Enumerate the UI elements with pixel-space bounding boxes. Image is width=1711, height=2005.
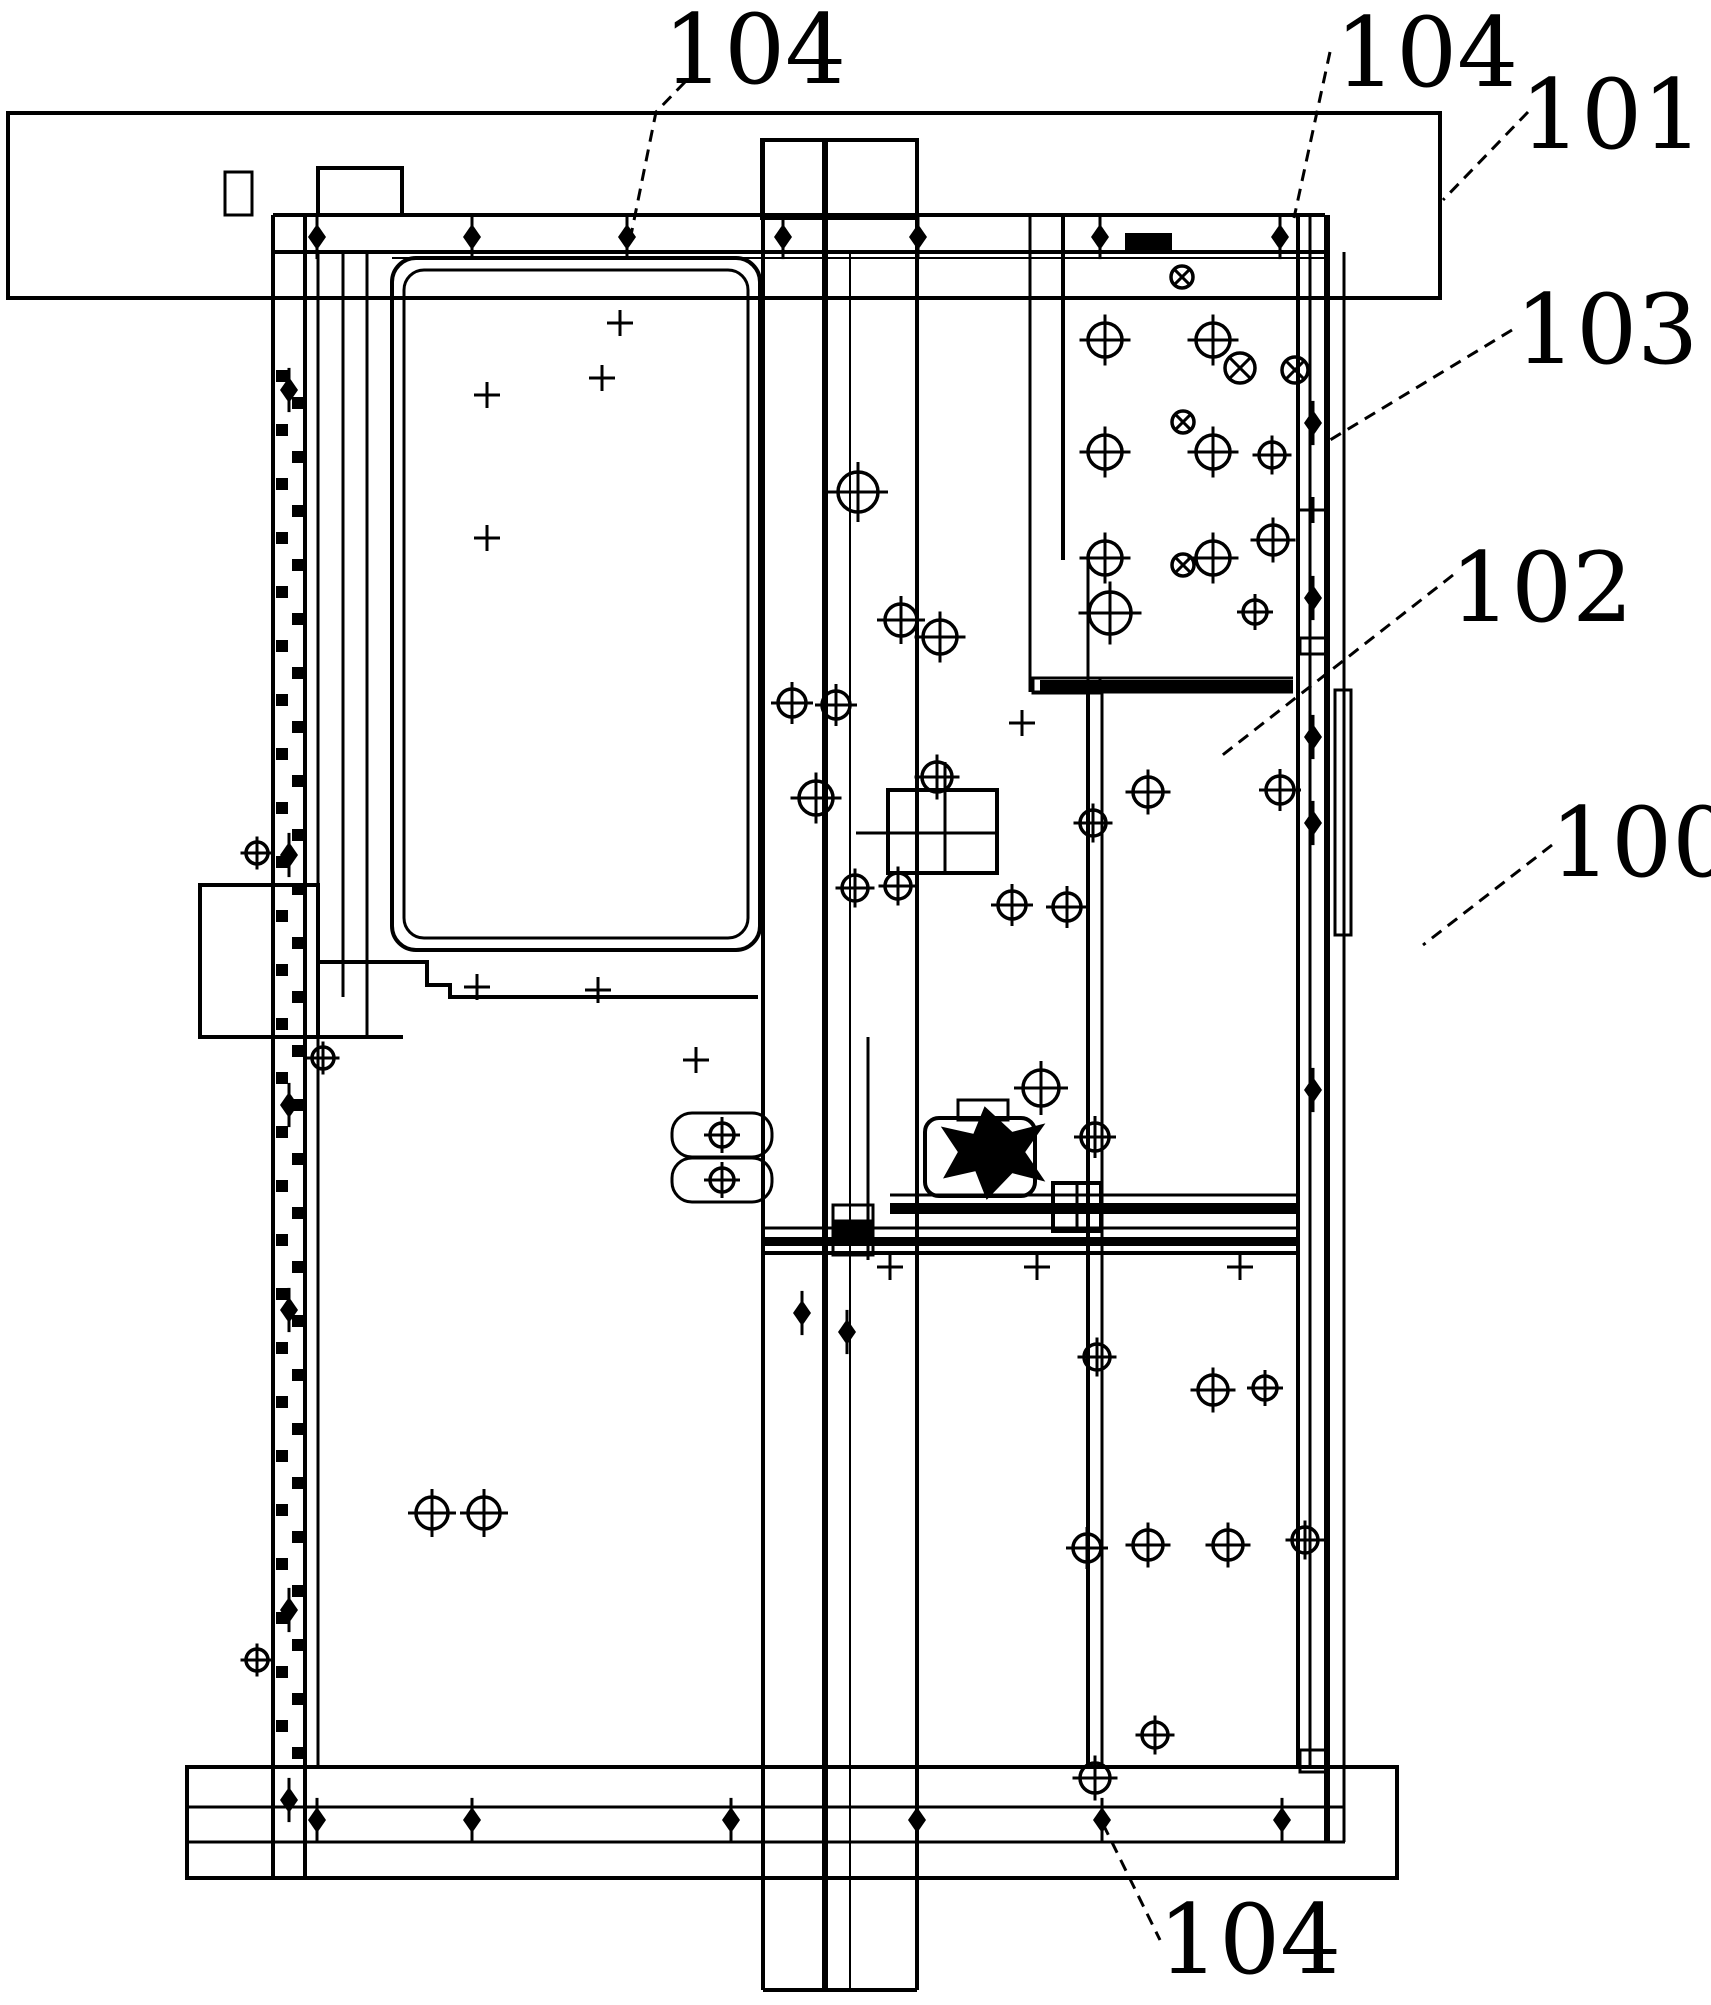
left-rail-hatch	[292, 613, 304, 625]
ref-104-top-right-leader	[1294, 52, 1330, 218]
ref-103-leader	[1330, 330, 1512, 440]
ref-100: 100	[1550, 787, 1711, 899]
left-rail-hatch	[292, 1747, 304, 1759]
left-rail-hatch	[276, 1558, 288, 1570]
ref-104-bottom: 104	[1158, 1884, 1341, 1996]
left-rail-hatch	[276, 640, 288, 652]
left-rail-hatch	[276, 1126, 288, 1138]
left-rail-hatch	[292, 1153, 304, 1165]
left-rail-hatch	[292, 1261, 304, 1273]
left-rail-hatch	[292, 1639, 304, 1651]
ref-101: 101	[1520, 59, 1703, 171]
left-rail-hatch	[292, 1423, 304, 1435]
left-rail-hatch	[276, 370, 288, 382]
left-rail-hatch	[292, 1531, 304, 1543]
left-rail-hatch	[276, 1396, 288, 1408]
rail-block	[1125, 233, 1172, 251]
ref-102: 102	[1450, 532, 1633, 644]
left-rail-hatch	[292, 883, 304, 895]
ref-103: 103	[1515, 274, 1698, 386]
left-rail-hatch	[292, 775, 304, 787]
left-rail-hatch	[292, 1099, 304, 1111]
door-panel-inner	[404, 270, 748, 938]
ref-100-leader	[1423, 845, 1552, 945]
column-top-tab	[762, 140, 917, 218]
door-panel-outer	[392, 258, 760, 950]
left-rail-hatch	[276, 1234, 288, 1246]
left-rail-hatch	[292, 721, 304, 733]
left-rail-hatch	[276, 1342, 288, 1354]
left-rail-hatch	[292, 1477, 304, 1489]
left-rail-hatch	[276, 1180, 288, 1192]
left-rail-hatch	[276, 1504, 288, 1516]
left-rail-hatch	[276, 910, 288, 922]
left-rail-hatch	[276, 478, 288, 490]
left-rail-hatch	[292, 829, 304, 841]
patent-drawing-canvas: 104104101103102100104	[0, 0, 1711, 2005]
left-rail-hatch	[276, 1072, 288, 1084]
left-rail-hatch	[292, 559, 304, 571]
left-rail-hatch	[292, 505, 304, 517]
left-rail-hatch	[292, 1585, 304, 1597]
ref-104-top-right: 104	[1335, 0, 1518, 109]
bottom-mount-bar	[187, 1767, 1397, 1878]
left-rail-hatch	[276, 424, 288, 436]
left-rail-hatch	[292, 1045, 304, 1057]
left-rail-hatch	[276, 1450, 288, 1462]
left-rail-hatch	[292, 1369, 304, 1381]
rail-top-tab	[318, 168, 402, 215]
left-rail-hatch	[276, 748, 288, 760]
left-rail-hatch	[276, 1018, 288, 1030]
left-rail-hatch	[276, 964, 288, 976]
left-rail-hatch	[292, 937, 304, 949]
left-rail-hatch	[276, 694, 288, 706]
carriage-bar-upper	[890, 1203, 1300, 1214]
left-rail-hatch	[292, 667, 304, 679]
carriage-bar-lower	[763, 1237, 1300, 1246]
left-rail-hatch	[292, 991, 304, 1003]
left-top-tab	[225, 172, 252, 215]
left-rail-hatch	[276, 532, 288, 544]
left-rail-hatch	[276, 1612, 288, 1624]
slide-bar-fill	[1040, 680, 1293, 692]
left-rail-hatch	[276, 1666, 288, 1678]
left-rail-hatch	[292, 451, 304, 463]
left-rail-hatch	[276, 586, 288, 598]
rail-joint-box-mid	[1300, 638, 1327, 654]
ref-104-top-left: 104	[663, 0, 846, 106]
left-rail-hatch	[292, 1207, 304, 1219]
left-rail-hatch	[276, 1720, 288, 1732]
left-rail-hatch	[292, 1693, 304, 1705]
left-rail-hatch	[292, 1315, 304, 1327]
left-protrusion	[200, 885, 318, 1037]
drawing-page: 104104101103102100104	[0, 0, 1711, 2005]
panel-step-edge	[318, 962, 758, 997]
left-rail-hatch	[292, 397, 304, 409]
left-rail-hatch	[276, 1288, 288, 1300]
ref-101-leader	[1443, 112, 1528, 200]
left-rail-hatch	[276, 856, 288, 868]
left-rail-hatch	[276, 802, 288, 814]
